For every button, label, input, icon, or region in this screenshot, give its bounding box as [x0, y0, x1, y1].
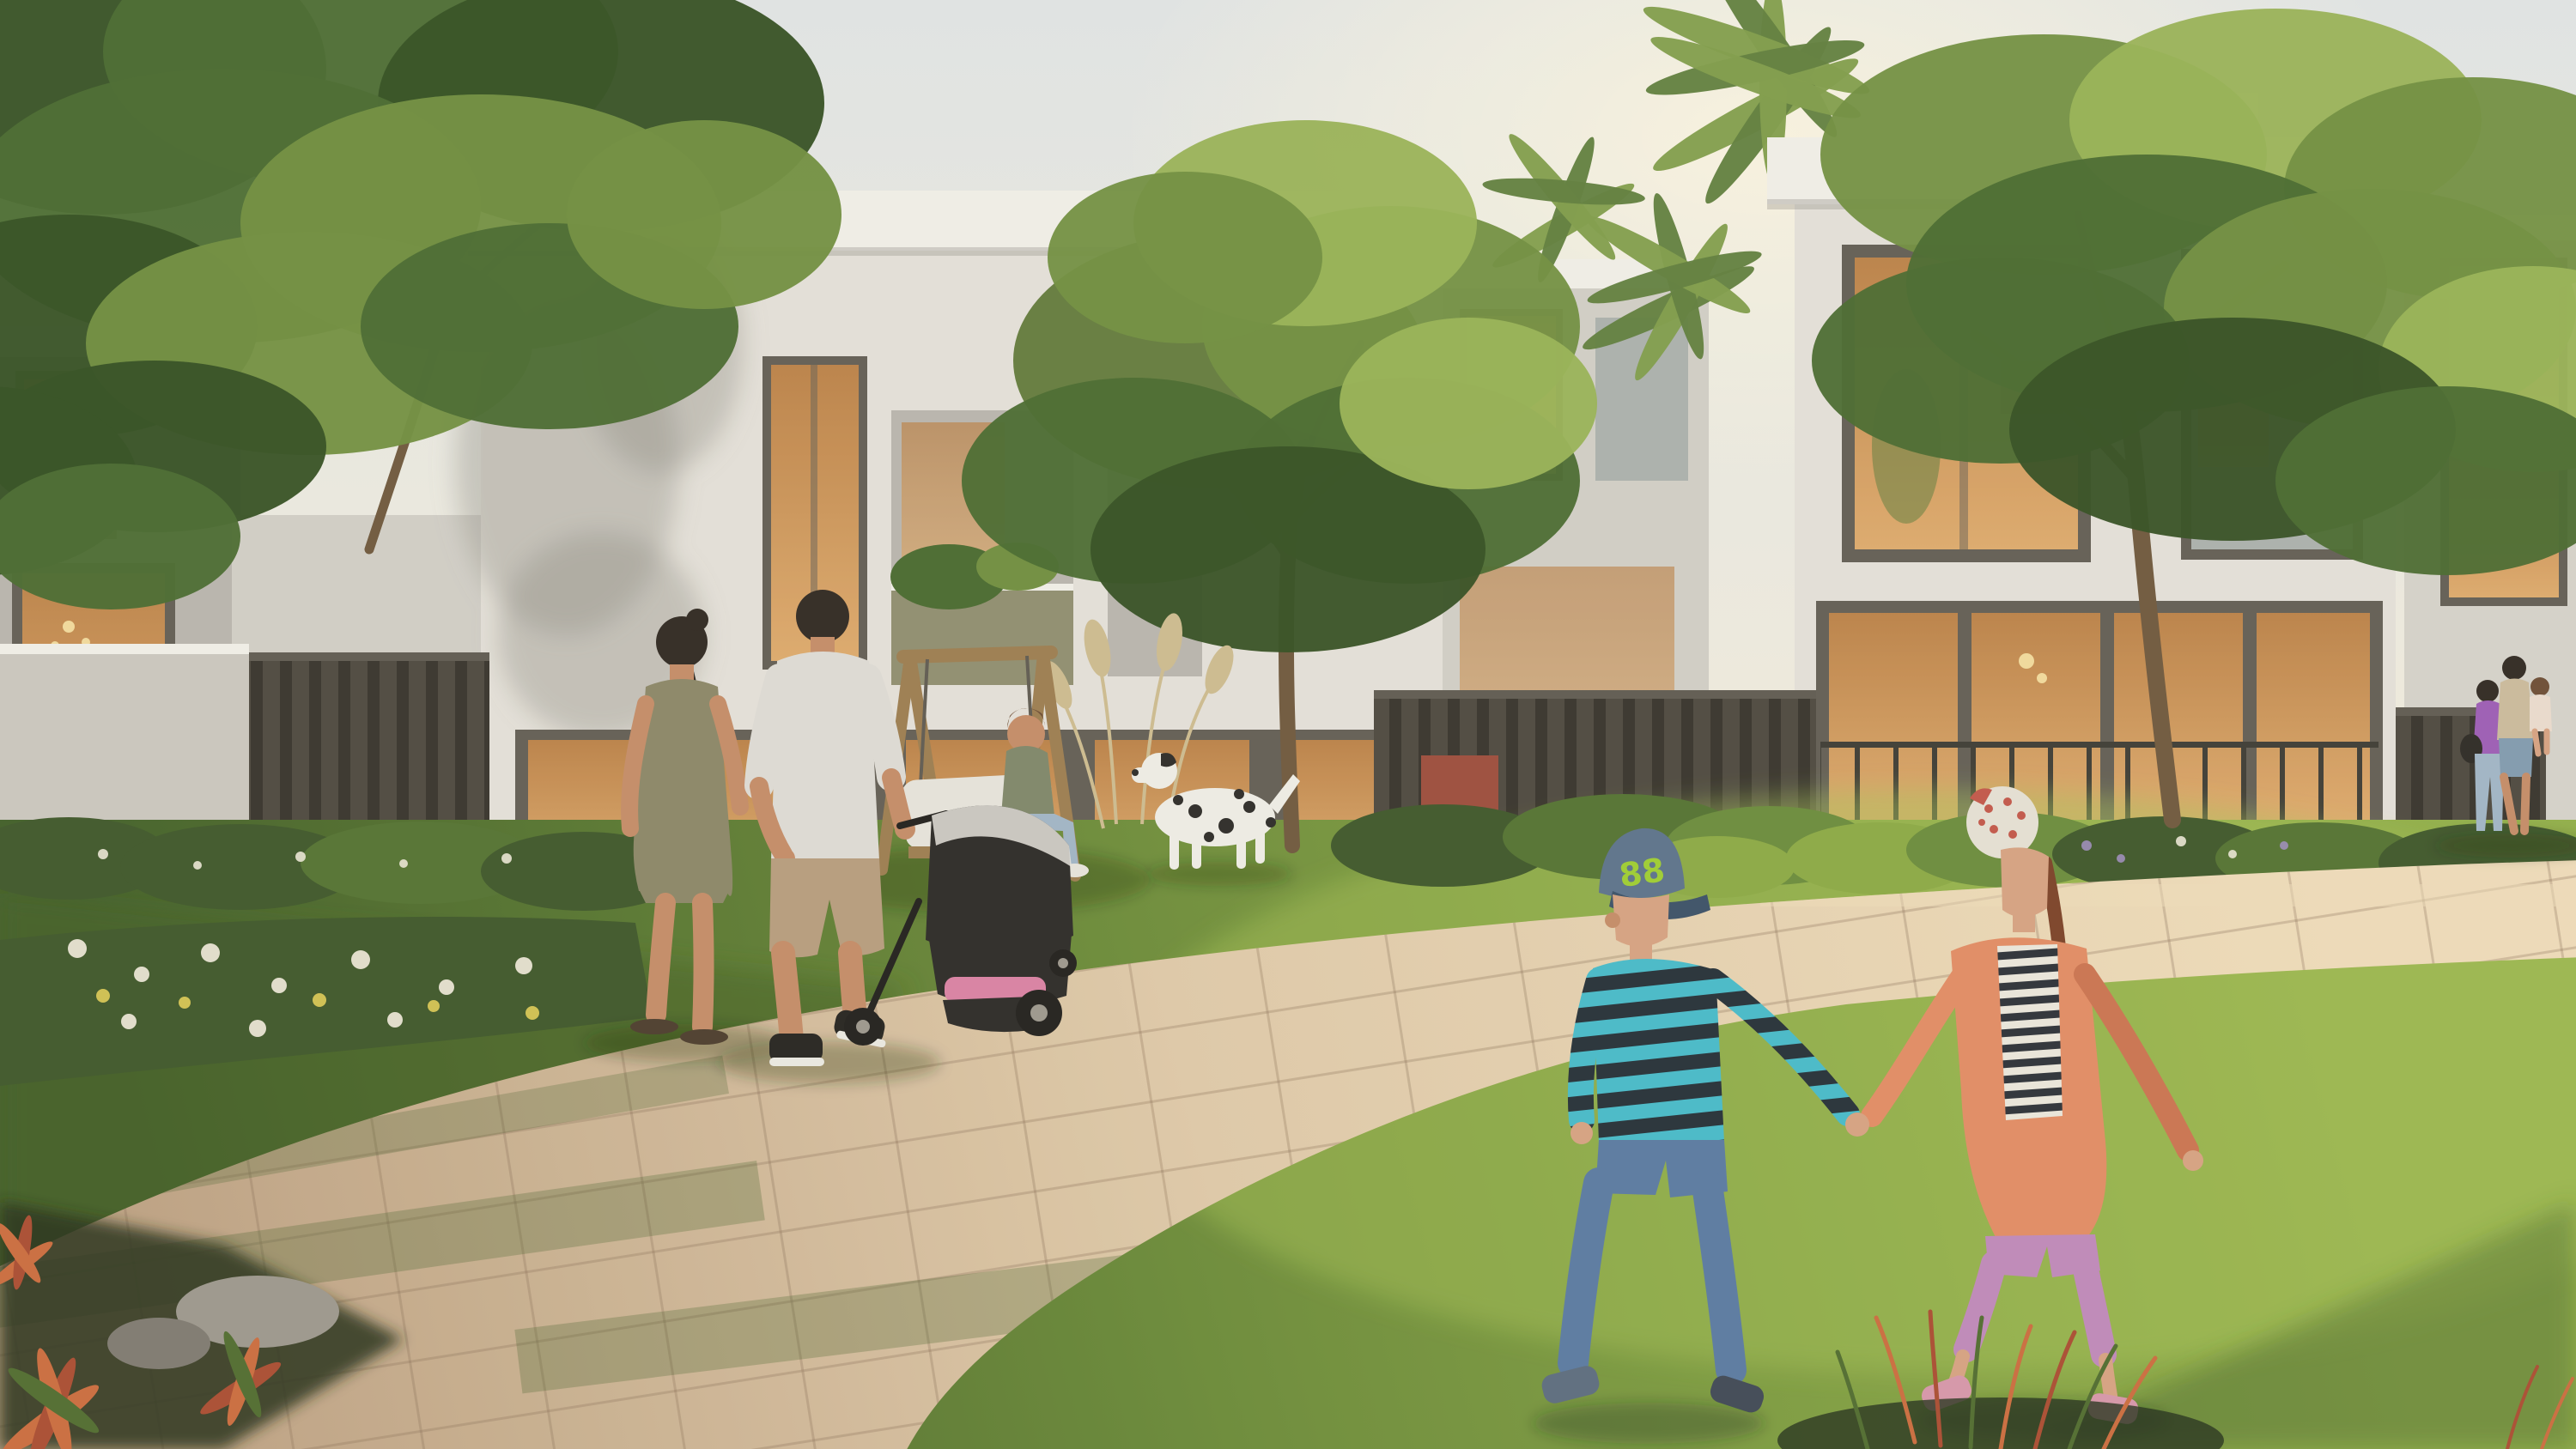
warm-haze-overlay — [0, 0, 2576, 1449]
rendered-photo: 88 — [0, 0, 2576, 1449]
scene: 88 — [0, 0, 2576, 1449]
